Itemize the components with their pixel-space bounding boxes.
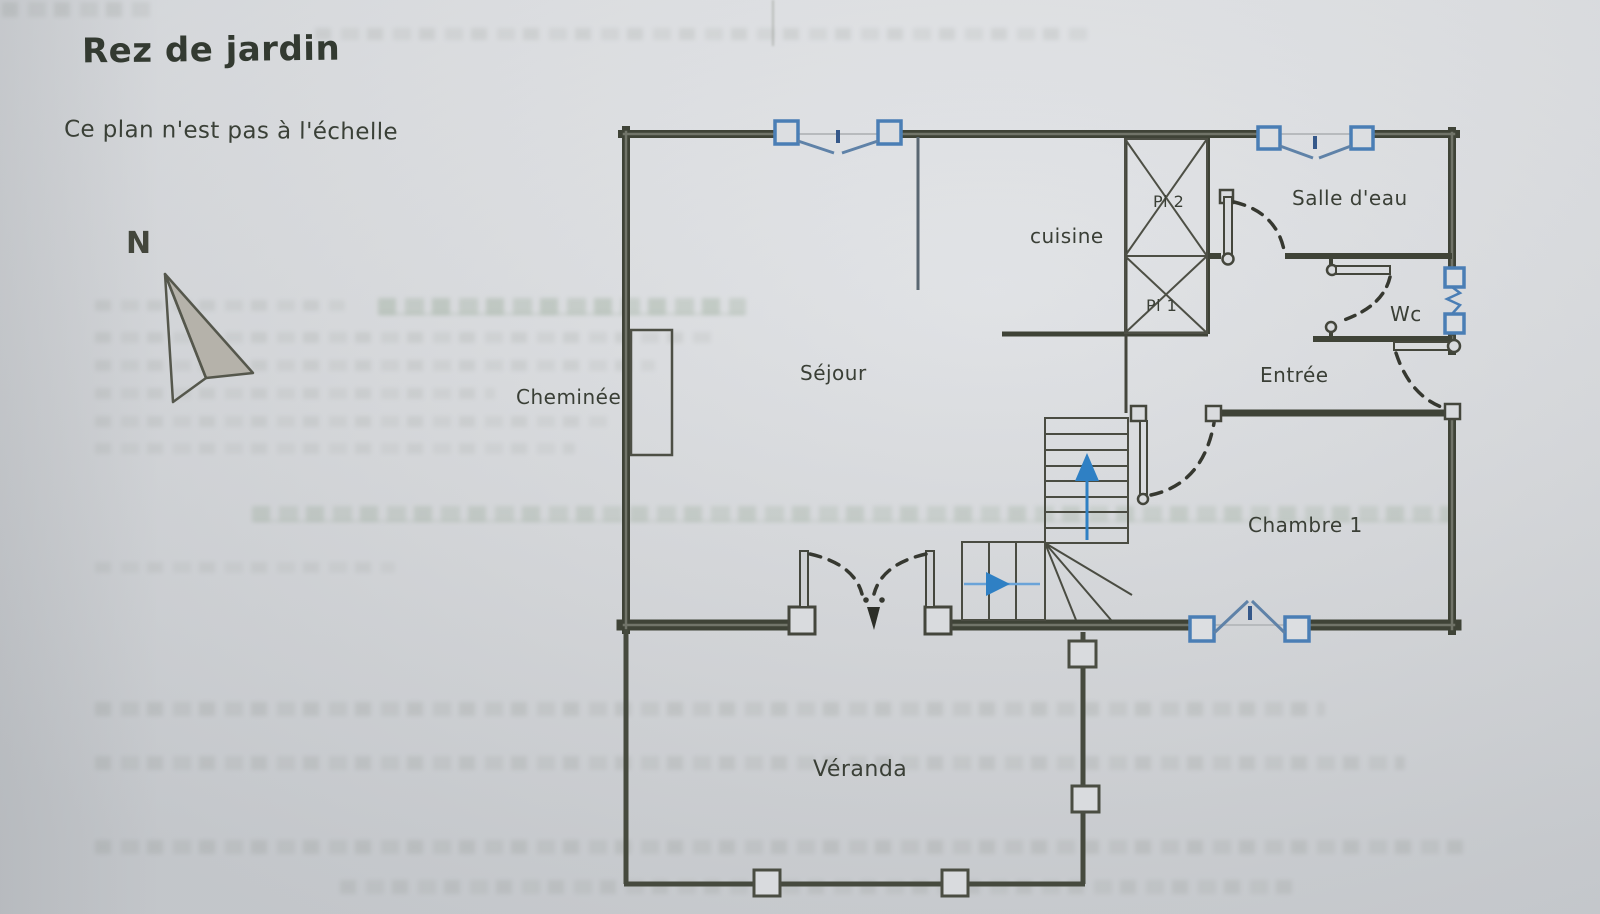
door-swing-arc [1341,277,1390,321]
stair-direction-arrows [964,453,1099,596]
fireplace [631,330,672,455]
door-swing-arc [1396,353,1444,408]
window-zigzag [1447,287,1460,314]
window-salle-deau-north [1258,127,1373,158]
door-leaf [1336,266,1390,274]
door-swing-dot [879,597,885,603]
door-hinge [1138,494,1148,504]
window-sejour-north [775,121,901,153]
door-entrance [1394,340,1460,419]
veranda-post [754,870,780,896]
door-swing-dot [863,597,869,603]
veranda-post [942,870,968,896]
window-frame-icon [1445,268,1464,287]
veranda-post [1072,786,1099,812]
door-sejour-veranda [789,551,951,634]
door-chambre-1 [1131,406,1221,504]
door-leaf [926,551,934,607]
room-label-veranda: Véranda [813,757,907,782]
room-label-placard-1: Pl 1 [1146,296,1177,315]
door-post [925,607,951,634]
door-hinge [1223,254,1234,265]
window-frame-icon [1258,127,1280,149]
room-label-cheminee: Cheminée [516,385,621,409]
room-label-chambre-1: Chambre 1 [1248,513,1363,537]
room-label-placard-2: Pl 2 [1153,192,1184,211]
north-arrow-icon: N [126,226,253,402]
room-label-salle-deau: Salle d'eau [1292,186,1408,210]
floor-plan-drawing: N Cheminée Séjour cuisine Pl 2 Pl 1 Sall… [0,0,1600,914]
north-arrow-shaded-half [165,274,253,378]
door-jamb [1326,322,1336,332]
door-center-marker [867,607,880,630]
door-swing-arc [1234,202,1284,250]
room-label-entree: Entrée [1260,363,1329,387]
room-label-wc: Wc [1390,302,1422,326]
window-frame-icon [1445,314,1464,333]
room-label-sejour: Séjour [800,361,867,385]
window-frame-icon [1351,127,1373,149]
room-labels: Cheminée Séjour cuisine Pl 2 Pl 1 Salle … [516,186,1422,782]
veranda-post [1069,641,1096,667]
window-chambre-south [1190,601,1309,641]
window-wc-east [1445,268,1464,333]
scanned-floor-plan-page: Rez de jardin Ce plan n'est pas à l'éche… [0,0,1600,914]
door-swing-arc [1151,423,1214,495]
door-leaf [800,551,808,607]
stair-winder-steps [1045,543,1132,620]
door-jamb [1445,404,1460,419]
window-frame-icon [1190,617,1214,641]
door-leaf [1394,342,1451,350]
door-salle-deau [1220,190,1284,265]
room-label-cuisine: cuisine [1030,224,1104,248]
door-hinge [1448,340,1460,352]
door-jamb [1131,406,1146,421]
door-swing-arc [810,554,926,594]
window-frame-icon [775,121,798,144]
window-frame-icon [878,121,901,144]
door-leaf [1140,421,1147,494]
door-post [789,607,815,634]
door-wc [1326,265,1390,332]
door-leaf [1224,197,1232,255]
window-frame-icon [1285,617,1309,641]
closet-pl1-cross [1125,256,1207,333]
north-label: N [126,226,152,261]
stair-arrow-right-head [986,572,1010,596]
door-jamb [1206,406,1221,421]
